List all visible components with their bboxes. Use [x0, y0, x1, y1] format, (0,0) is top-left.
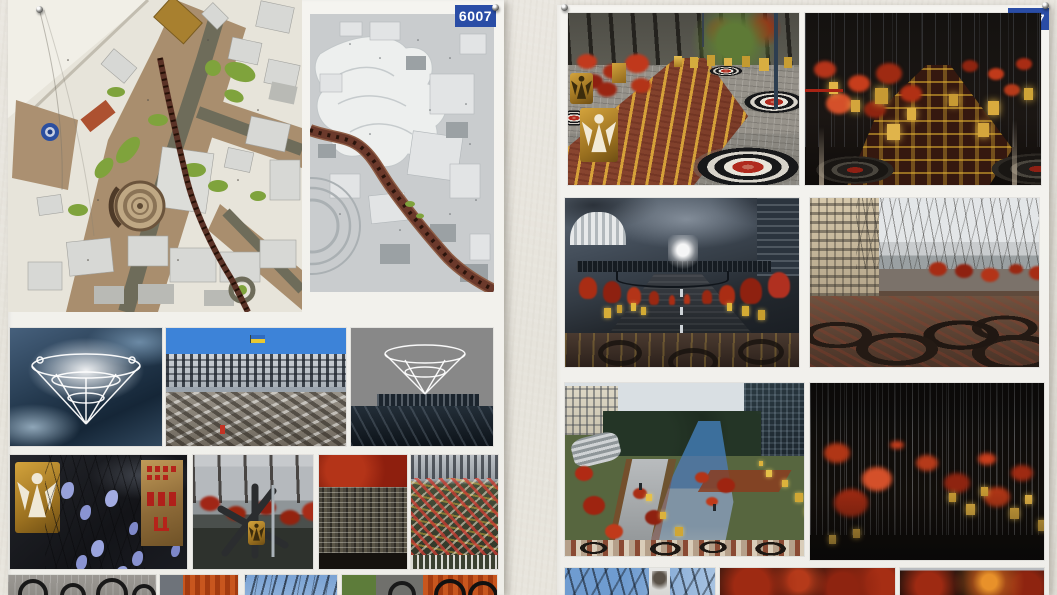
tyre-ring-motif	[132, 584, 156, 595]
golden-angel-lantern	[570, 73, 593, 104]
tyre-ring-motif	[60, 583, 86, 595]
tyre-ring-motif	[738, 339, 784, 365]
red-tree-row-right	[768, 272, 790, 298]
red-tree-row	[929, 262, 947, 276]
truss-canopy	[351, 406, 493, 446]
render-angel-chandelier-sky	[10, 328, 162, 446]
render-chandelier-over-canopy	[351, 328, 493, 446]
gallery-wall-photo: 6007	[0, 0, 1057, 595]
bare-trees	[856, 198, 1039, 269]
push-pin	[1042, 2, 1049, 9]
tyre-ring-motif	[388, 581, 416, 595]
maidan-buildings	[166, 354, 346, 387]
bridge-arch	[616, 271, 728, 288]
strip-winter-trees	[245, 575, 337, 595]
photo-paper-angels-sign	[10, 455, 187, 569]
bullseye-target	[739, 89, 799, 115]
golden-angel-plaque-small	[248, 521, 265, 545]
tyre-ring-motif	[96, 578, 128, 595]
tyre-ring-motif	[18, 579, 48, 595]
light-column	[1012, 120, 1017, 185]
red-bushes	[575, 466, 593, 481]
light-pole	[774, 13, 778, 109]
site-plan-grey-map	[310, 14, 494, 292]
park-trees-band	[568, 13, 799, 65]
ukrainian-flag	[251, 335, 265, 343]
glowing-ring-structure	[351, 328, 493, 408]
photo-antitank-hedgehog	[193, 455, 313, 569]
foreground-paving	[565, 333, 799, 367]
strip-red-trees-night	[720, 568, 895, 595]
pedestrian-figure	[639, 483, 642, 490]
portrait-tile-wall	[319, 487, 407, 553]
pedestrian-figure	[713, 504, 716, 511]
golden-angel-lantern-small	[612, 63, 626, 83]
chandelier-structure	[10, 328, 162, 446]
tyre-ring-motif	[598, 340, 642, 366]
strip-banner-sky	[565, 568, 715, 595]
strip-mosaic-rings	[342, 575, 497, 595]
presentation-board-left: 6007	[8, 0, 504, 595]
red-tree-row-left	[579, 277, 597, 299]
stone-stairs	[569, 430, 622, 470]
render-plaza-day	[568, 13, 799, 185]
grey-block	[160, 575, 183, 595]
golden-angel-lantern-large	[580, 108, 618, 162]
render-street-bridge	[565, 198, 799, 367]
dark-base	[319, 553, 407, 569]
mosaic-ring-band	[565, 540, 804, 556]
sign-lettering	[147, 475, 171, 480]
photo-memorial-portrait-wall	[319, 455, 407, 569]
bare-branches	[245, 575, 337, 595]
red-stripe	[805, 89, 843, 92]
branches	[565, 568, 715, 595]
push-pin	[561, 4, 568, 11]
render-plaza-night	[805, 13, 1041, 185]
red-figure	[220, 425, 225, 434]
red-brown-ground	[697, 470, 791, 492]
vignette	[810, 383, 1044, 560]
barricade-debris	[166, 392, 346, 446]
light-column	[819, 127, 824, 185]
strip-orange-mosaic	[160, 575, 238, 595]
glowing-red-flowers	[1016, 58, 1032, 70]
light-pole	[702, 13, 704, 47]
push-pin	[492, 4, 499, 11]
push-pin	[36, 6, 43, 13]
strip-red-trees-flame	[900, 568, 1044, 595]
rusty-memorial-sign	[141, 460, 183, 547]
yellow-lantern-posts	[631, 303, 636, 311]
bullseye-target	[688, 144, 799, 185]
tyre-ring-motif	[668, 348, 718, 367]
sign-lettering	[147, 492, 178, 506]
sign-lettering	[147, 466, 178, 472]
site-plan-color-map	[8, 0, 302, 312]
bullseye-target	[707, 65, 745, 77]
photo-maidan-barricades	[166, 328, 346, 446]
strip-pavement-rings	[8, 575, 156, 595]
green-segment	[342, 575, 376, 595]
dark-tree-masses	[603, 411, 761, 456]
photo-flower-parapet	[411, 455, 498, 569]
sign-glyph	[154, 517, 169, 531]
candle-row	[411, 555, 498, 569]
render-street-autumn	[810, 198, 1039, 367]
tyre-ring-paving	[810, 296, 1039, 367]
lantern-row	[674, 56, 682, 67]
render-park-path	[565, 383, 804, 556]
road-center-line	[680, 279, 683, 333]
board-number-text: 6007	[459, 8, 492, 24]
board-number-badge-left: 6007	[455, 5, 496, 27]
red-tree-canopy	[319, 455, 407, 489]
presentation-board-right: 6007	[557, 5, 1049, 595]
dark-branches	[45, 455, 144, 569]
background-buildings	[411, 455, 498, 479]
yellow-cube-lanterns	[646, 494, 652, 501]
glowing-wreath-emblem	[668, 235, 698, 273]
portrait	[652, 571, 667, 595]
render-night-beams	[810, 383, 1044, 560]
